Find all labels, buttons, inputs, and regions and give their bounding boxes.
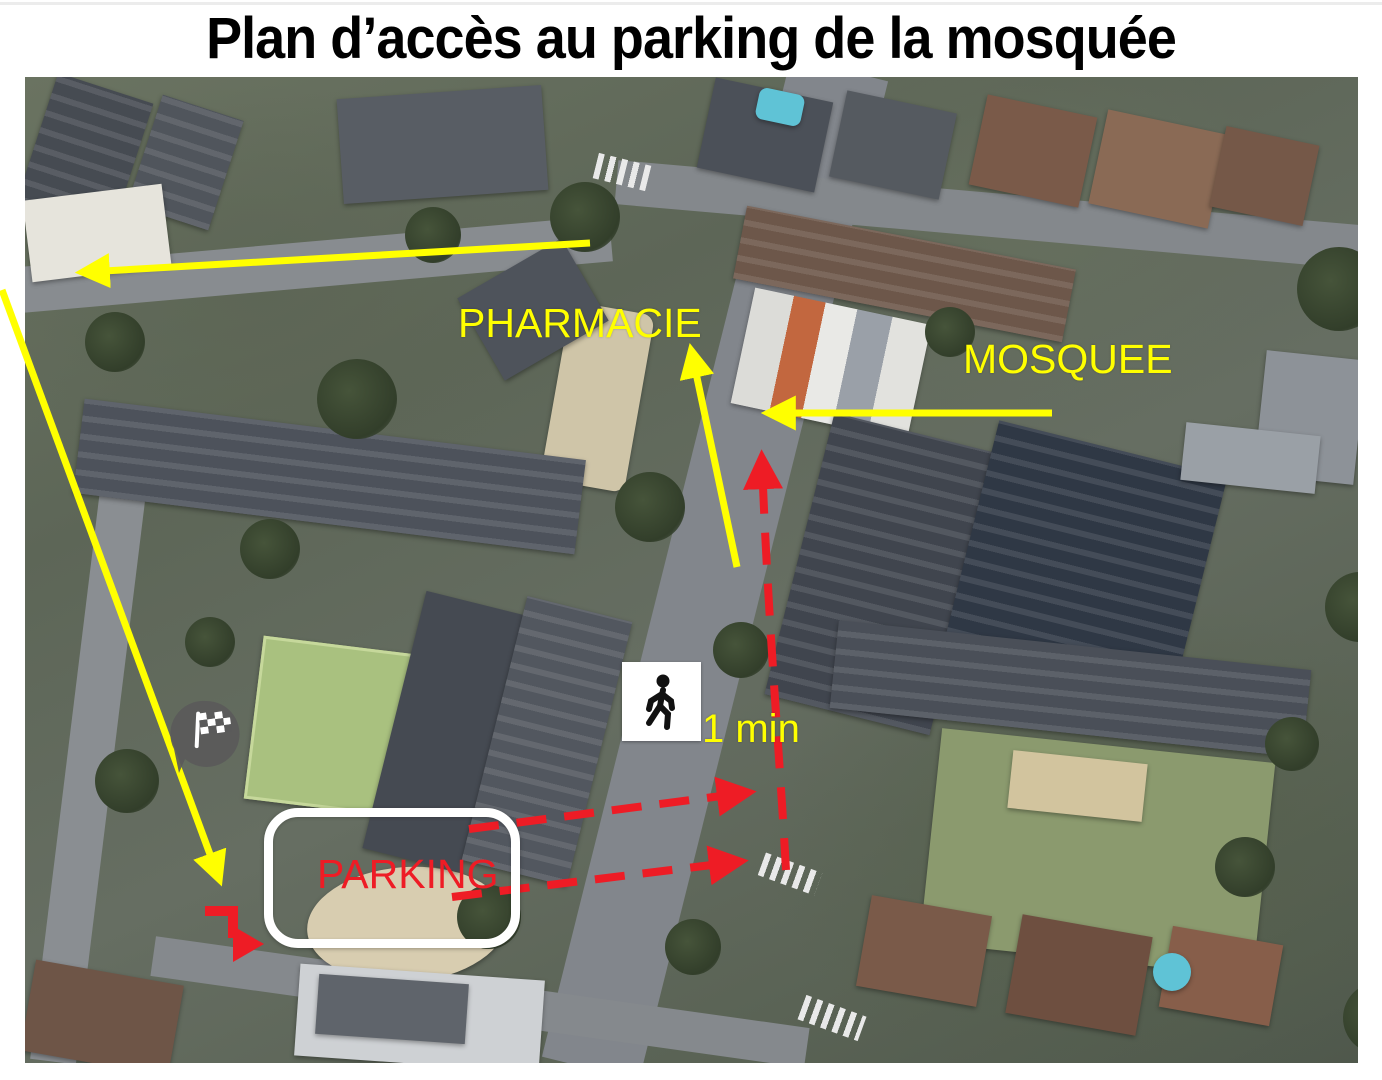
map-building (969, 94, 1098, 207)
map-tree (317, 359, 397, 439)
map-tree (1343, 982, 1358, 1054)
map-building (1210, 126, 1320, 226)
map-tree (185, 617, 235, 667)
map-building (315, 974, 469, 1044)
map-tree (240, 519, 300, 579)
map-tree (1265, 717, 1319, 771)
map-tree (405, 207, 461, 263)
aerial-photo (25, 77, 1358, 1063)
map-tree (550, 182, 620, 252)
map-pool (1153, 953, 1191, 991)
walking-person-glyph (636, 673, 688, 731)
map-building (337, 85, 549, 204)
parking-label: PARKING (317, 851, 499, 898)
map-building (1005, 914, 1152, 1035)
map-tree (665, 919, 721, 975)
destination-flag-glyph (166, 699, 246, 775)
destination-flag-icon (166, 699, 246, 775)
map-building (25, 184, 171, 282)
map-tree (1325, 572, 1358, 642)
map-tree (1215, 837, 1275, 897)
map-tree (95, 749, 159, 813)
map-tree (615, 472, 685, 542)
mosquee-label: MOSQUEE (963, 336, 1173, 383)
pharmacie-label: PHARMACIE (458, 300, 702, 347)
page-title: Plan d’accès au parking de la mosquée (48, 2, 1333, 76)
walking-person-icon (622, 662, 701, 741)
map-building (856, 895, 992, 1007)
walk-time-label: 1 min (702, 707, 800, 752)
map-crosswalk (758, 852, 823, 895)
map-tree (85, 312, 145, 372)
parking-highlight-box: PARKING (264, 808, 520, 948)
map-tree (713, 622, 769, 678)
